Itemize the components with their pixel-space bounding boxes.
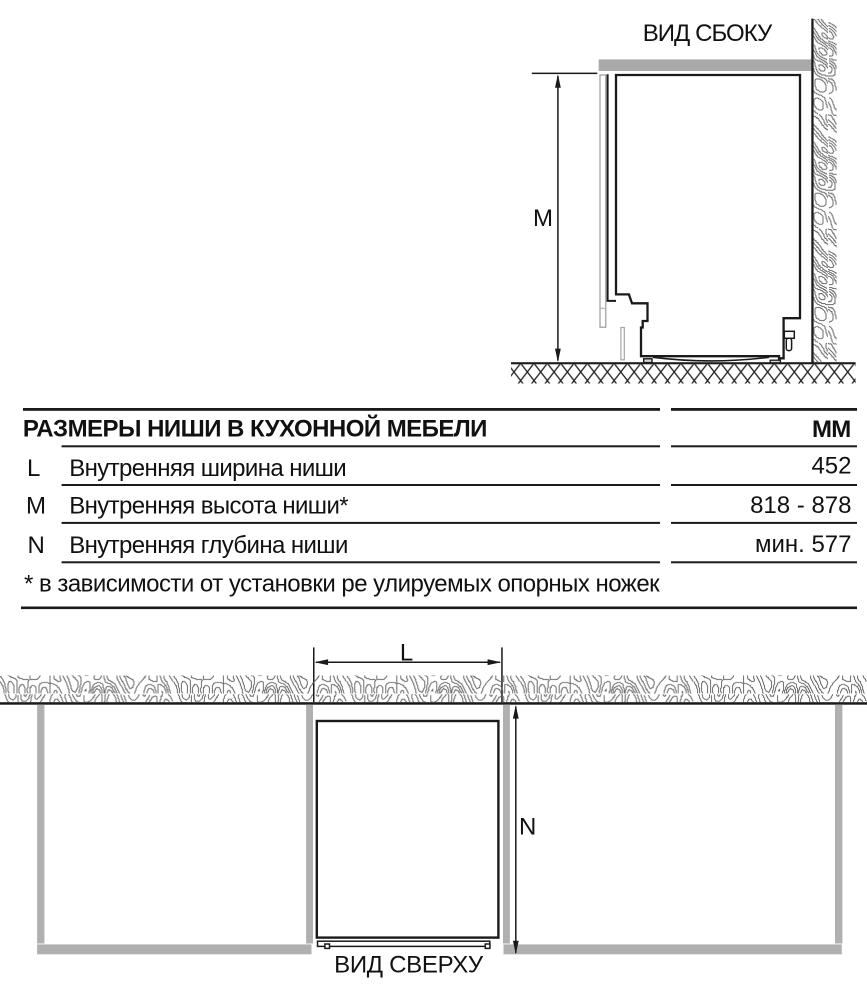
- svg-text:ММ: ММ: [812, 416, 850, 443]
- svg-text:ВИД СБОКУ: ВИД СБОКУ: [643, 20, 773, 47]
- svg-text:* в зависимости от установки р: * в зависимости от установки ре улируемы…: [24, 571, 660, 598]
- svg-text:M: M: [26, 493, 46, 520]
- svg-text:Внутренняя глубина ниши: Внутренняя глубина ниши: [69, 532, 348, 559]
- svg-text:РАЗМЕРЫ НИШИ В КУХОННОЙ МЕБЕЛИ: РАЗМЕРЫ НИШИ В КУХОННОЙ МЕБЕЛИ: [23, 415, 487, 443]
- svg-text:Внутренняя высота ниши*: Внутренняя высота ниши*: [69, 493, 348, 520]
- svg-text:N: N: [28, 532, 45, 559]
- svg-text:L: L: [27, 455, 40, 482]
- svg-text:М: М: [533, 205, 553, 232]
- svg-text:Внутренняя ширина ниши: Внутренняя ширина ниши: [69, 455, 346, 482]
- svg-text:818 - 878: 818 - 878: [750, 492, 851, 519]
- svg-text:мин. 577: мин. 577: [755, 531, 852, 558]
- svg-text:452: 452: [811, 453, 851, 480]
- svg-text:N: N: [519, 814, 536, 841]
- svg-text:ВИД СВЕРХУ: ВИД СВЕРХУ: [334, 952, 484, 979]
